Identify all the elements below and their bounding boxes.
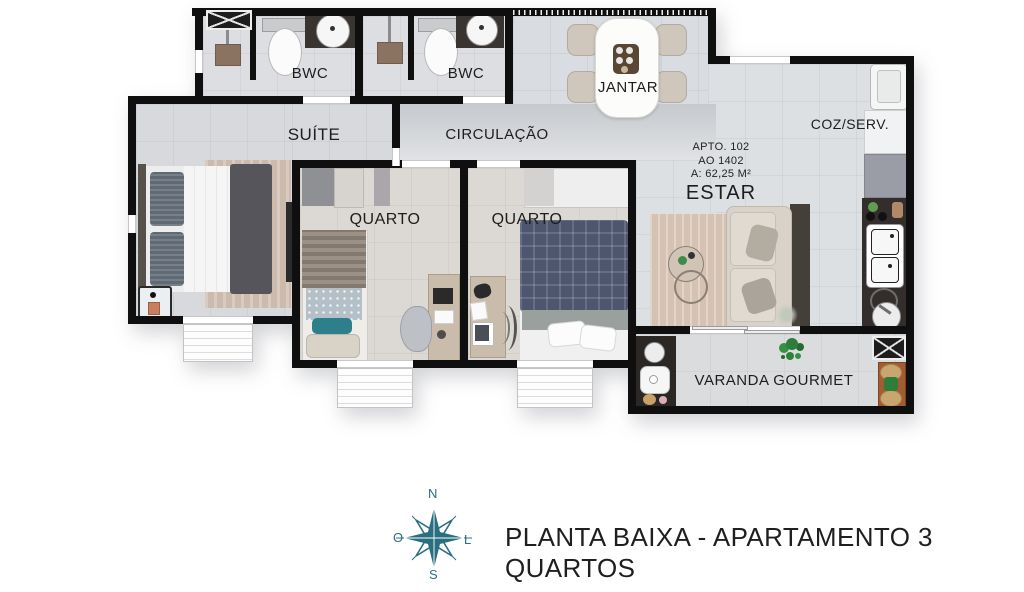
wall [413, 360, 517, 368]
window-opening [183, 316, 253, 324]
laundry-tank-basin [877, 70, 901, 103]
quarto1-sheet [306, 288, 362, 320]
tray-item [626, 47, 633, 54]
varanda-chair [880, 390, 902, 407]
coffee-table-plant [678, 256, 687, 265]
nightstand-lamp [150, 292, 156, 298]
apartment-number: APTO. 102 [693, 141, 750, 155]
wall [628, 160, 636, 414]
wardrobe [302, 168, 334, 206]
door-opening [303, 96, 350, 104]
shower-partition-wall [408, 16, 414, 80]
shower-arm [388, 16, 391, 42]
wall [520, 160, 636, 168]
room-label-bwc1: BWC [270, 64, 350, 82]
wall [800, 326, 906, 334]
wall [350, 96, 463, 104]
counter-decor-plant [868, 202, 878, 212]
suite-door-opening [392, 148, 400, 166]
entrance-door-opening [730, 56, 790, 64]
tray-item [616, 47, 623, 54]
wall [355, 8, 363, 104]
apartment-info-block: APTO. 102 AO 1402 A: 62,25 M² ESTAR [651, 141, 791, 207]
wall [128, 233, 136, 324]
varanda-sink [644, 342, 665, 363]
wall [128, 96, 136, 215]
wall [505, 8, 513, 104]
varanda-decor [643, 394, 656, 405]
counter-decor [866, 212, 875, 221]
sink-drain [890, 234, 894, 238]
sliding-door-leaf [692, 326, 748, 330]
compass-south-label: S [429, 567, 438, 582]
suite-blanket [230, 164, 272, 294]
door-opening [402, 160, 450, 168]
window-grille [337, 368, 413, 408]
window-opening [128, 215, 136, 233]
wall [460, 166, 468, 368]
suite-bed-headboard [138, 164, 146, 292]
apartment-floor-plan: BWC BWC JANTAR COZ/SERV. SUÍTE CIRCULAÇÃ… [0, 0, 1024, 592]
grill-knob [649, 375, 658, 384]
shaft-icon [206, 10, 252, 30]
wall [392, 104, 400, 148]
window-opening [517, 360, 593, 368]
quarto1-pillow [306, 334, 360, 358]
desk-papers [434, 310, 454, 324]
desk-papers [470, 301, 488, 321]
dining-chair [655, 24, 687, 56]
sink-icon [466, 14, 498, 46]
counter-decor [878, 212, 887, 221]
wall [128, 316, 183, 324]
wall [708, 56, 730, 64]
shower-head-icon [377, 42, 403, 64]
sink-drain [330, 26, 335, 31]
floor-plant [776, 304, 798, 326]
room-label-bwc2: BWC [426, 64, 506, 82]
desk-decor [437, 330, 446, 339]
tray-item [621, 66, 628, 73]
varanda-table-plant [884, 377, 898, 391]
compass-north-label: N [428, 486, 437, 501]
wardrobe [334, 168, 364, 208]
plant-icon [786, 338, 798, 350]
wall [292, 160, 300, 368]
wall [906, 56, 914, 414]
room-label-estar: ESTAR [686, 182, 756, 204]
desk-laptop [433, 288, 453, 304]
sink-bowl [871, 229, 899, 255]
wall [292, 160, 402, 168]
quarto1-teal-pillow [312, 318, 352, 334]
room-label-coz-serv: COZ/SERV. [788, 115, 912, 132]
room-label-circulacao: CIRCULAÇÃO [416, 125, 578, 143]
room-label-jantar: JANTAR [585, 78, 671, 96]
nightstand-decor [148, 302, 160, 315]
window-mullions [513, 10, 708, 15]
shaft-icon [872, 336, 906, 360]
wall [292, 360, 337, 368]
coffee-table-decor [688, 252, 695, 259]
coffee-table-ring [674, 270, 708, 304]
suite-pillow [150, 172, 184, 226]
room-label-suite: SUÍTE [268, 125, 360, 145]
room-label-quarto2: QUARTO [477, 210, 577, 230]
varanda-decor [659, 396, 667, 404]
tray-item [626, 57, 633, 64]
suite-duvet [184, 166, 232, 292]
quarto2-plaid-blanket [520, 220, 628, 312]
wall [636, 326, 690, 334]
tray-item [616, 57, 623, 64]
floor-plan-image: BWC BWC JANTAR COZ/SERV. SUÍTE CIRCULAÇÃ… [0, 0, 1024, 592]
quarto2-pillow [579, 324, 618, 352]
wall [593, 360, 636, 368]
desk-picture [475, 325, 489, 341]
compass-east-label: L [464, 532, 471, 547]
plan-caption: PLANTA BAIXA - APARTAMENTO 3 QUARTOS [505, 522, 975, 584]
sink-bowl [871, 257, 899, 283]
sink-drain [888, 264, 892, 268]
sliding-door-leaf [744, 330, 800, 334]
window-opening [195, 50, 203, 73]
washing-machine [864, 154, 908, 198]
wall [195, 8, 203, 50]
wall [790, 56, 914, 64]
shower-head-icon [215, 44, 241, 66]
window-grille [517, 368, 593, 408]
door-opening [463, 96, 505, 104]
counter-decor-board [892, 202, 903, 218]
room-label-varanda: VARANDA GOURMET [688, 370, 860, 390]
wall [128, 96, 203, 104]
sink-icon [316, 14, 350, 48]
wall [628, 406, 914, 414]
wall [195, 96, 303, 104]
door-opening [477, 160, 520, 168]
compass-west-label: O [393, 530, 403, 545]
desk-chair-arc [494, 312, 510, 344]
wardrobe [374, 168, 390, 206]
sink-drain [479, 25, 484, 30]
room-label-quarto1: QUARTO [335, 210, 435, 230]
window-grille [183, 324, 253, 362]
suite-pillow [150, 232, 184, 286]
window-opening [337, 360, 413, 368]
apartment-unit: AO 1402 [698, 155, 744, 169]
desk-chair [400, 306, 432, 352]
apartment-area: A: 62,25 M² [691, 168, 751, 182]
quarto1-blanket [302, 230, 366, 288]
wardrobe-section [524, 168, 554, 206]
